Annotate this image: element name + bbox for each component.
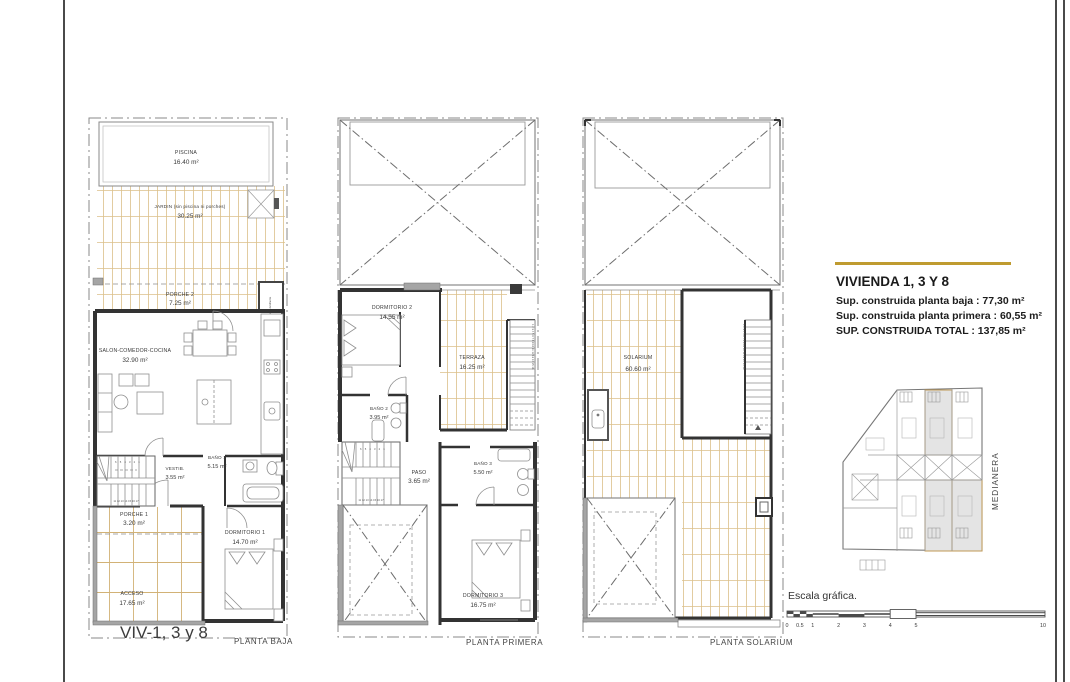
stairs: 6 5 4 3 2 1 11 12 13 14 15 16 17 (97, 456, 155, 506)
room-area-porche2: 7.25 m² (169, 300, 191, 307)
vivienda-title: VIVIENDA 1, 3 Y 8 (836, 274, 949, 289)
scale-tick: 1 (811, 623, 814, 629)
room-label-dormitorio2: DORMITORIO 2 (372, 305, 412, 311)
caption-planta-primera: PLANTA PRIMERA (466, 638, 543, 647)
room-area-dormitorio3: 16.75 m² (470, 602, 495, 609)
planta-solarium-drawing: 1 2 3 4 5 6 7 8 9 10 11 12 13 14 15 16 S… (575, 112, 790, 652)
void-over-acceso (583, 498, 678, 622)
solarium-hatch-right (682, 438, 771, 618)
room-area-acceso: 17.65 m² (119, 600, 144, 607)
stair-numbers-bottom: 11 12 13 14 15 16 17 (113, 499, 139, 503)
scale-tick: 2 (837, 623, 840, 629)
stair-numbers-top: 6 5 4 3 2 1 (115, 460, 141, 464)
void-over-garden (340, 120, 535, 285)
room-label-dormitorio1: DORMITORIO 1 (225, 530, 265, 536)
room-area-bano3: 5.50 m² (474, 470, 493, 476)
room-area-jardin: 30.25 m² (177, 213, 202, 220)
sup-total: SUP. CONSTRUIDA TOTAL : 137,85 m² (836, 325, 1026, 337)
room-area-dormitorio1: 14.70 m² (232, 539, 257, 546)
room-label-porche2: PORCHE 2 (166, 292, 194, 298)
stairs-winder: 6 5 4 3 2 1 11 12 13 14 15 16 17 (342, 442, 400, 505)
room-label-solarium: SOLARIUM (624, 355, 653, 361)
bed-dormitorio1 (225, 539, 283, 621)
room-area-dormitorio2: 14.55 m² (379, 314, 404, 321)
scale-bar: 0 0.5 1 2 3 4 5 10 (783, 604, 1049, 634)
planta-baja-drawing: Armario Jardinería (85, 112, 295, 647)
stair-numbers-bottom: 11 12 13 14 15 16 17 (358, 498, 384, 502)
room-area-piscina: 16.40 m² (173, 159, 198, 166)
scale-ticks: 0 0.5 1 2 3 4 5 10 (786, 623, 1047, 629)
room-label-jardin: JARDIN (sin piscina ni porches) (154, 204, 225, 209)
stair-numbers-top: 6 5 4 3 2 1 (360, 447, 386, 451)
room-area-vestib: 3.55 m² (166, 475, 185, 481)
room-area-salon: 32.90 m² (122, 357, 147, 364)
room-label-acceso: ACCESO (120, 591, 143, 597)
viv-label: VIV-1, 3 y 8 (120, 623, 208, 643)
medianera-label: MEDIANERA (991, 452, 1000, 510)
dining-table (184, 321, 236, 356)
room-label-terraza: TERRAZA (459, 355, 485, 361)
caption-planta-solarium: PLANTA SOLARIUM (710, 638, 793, 647)
bathroom1-fixtures (243, 460, 283, 502)
scale-tick: 10 (1040, 623, 1046, 629)
stairs-straight: 1 2 3 4 5 6 7 8 9 10 11 12 13 14 15 16 (510, 320, 535, 430)
room-area-bano1: 5.15 m² (208, 464, 227, 470)
sup-planta-baja: Sup. construida planta baja : 77,30 m² (836, 295, 1024, 307)
stairs-straight: 1 2 3 4 5 6 7 8 9 10 11 12 13 14 15 16 (742, 320, 771, 434)
room-label-paso: PASO (412, 470, 427, 476)
drawing-sheet: Armario Jardinería (0, 0, 1070, 682)
armario-jardineria: Armario Jardinería (259, 282, 283, 319)
sofa (98, 374, 163, 432)
escala-label: Escala gráfica. (788, 590, 857, 602)
room-label-piscina: PISCINA (175, 150, 197, 156)
tv-unit (197, 380, 231, 424)
bed-dormitorio2 (342, 315, 400, 377)
accent-rule (835, 262, 1011, 265)
sheet-border-right-outer (1063, 0, 1065, 682)
scale-tick: 3 (863, 623, 866, 629)
scale-tick: 5 (915, 623, 918, 629)
room-label-vestib: VESTIB. (165, 466, 184, 471)
room-area-porche1: 3.20 m² (123, 520, 145, 527)
acceso-hatch (97, 507, 203, 622)
planta-primera-drawing: 1 2 3 4 5 6 7 8 9 10 11 12 13 14 15 16 6… (330, 112, 545, 652)
scale-tick: 0.5 (796, 623, 804, 629)
scale-tick: 4 (889, 623, 892, 629)
sheet-border-right-inner (1055, 0, 1057, 682)
void-over-acceso (338, 505, 428, 625)
void-over-garden (585, 120, 780, 285)
room-label-porche1: PORCHE 1 (120, 512, 148, 518)
room-area-solarium: 60.60 m² (625, 366, 650, 373)
stair-numbers-side: 1 2 3 4 5 6 7 8 9 10 11 12 13 14 15 16 (531, 324, 535, 370)
site-key-plan: MEDIANERA (838, 378, 1013, 578)
room-area-bano2: 3.95 m² (370, 415, 389, 421)
kitchen-counter (261, 314, 283, 454)
sheet-border-left (63, 0, 65, 682)
room-label-salon: SALON-COMEDOR-COCINA (99, 348, 172, 354)
stair-numbers-side: 1 2 3 4 5 6 7 8 9 10 11 12 13 14 15 16 (742, 324, 746, 370)
room-area-paso: 3.65 m² (408, 478, 430, 485)
room-label-bano2: BAÑO 2 (370, 405, 388, 411)
porche2-wall-left (93, 278, 103, 285)
solarium-sink (588, 390, 608, 440)
sup-planta-primera: Sup. construida planta primera : 60,55 m… (836, 310, 1042, 322)
room-label-bano3: BAÑO 3 (474, 460, 492, 466)
scale-tick: 0 (786, 623, 789, 629)
room-label-dormitorio3: DORMITORIO 3 (463, 593, 503, 599)
room-area-terraza: 16.25 m² (459, 364, 484, 371)
chimney-box (756, 498, 772, 516)
jardin-feature-box (248, 190, 279, 218)
room-label-bano1: BAÑO 1 (208, 454, 226, 460)
caption-planta-baja: PLANTA BAJA (234, 637, 293, 646)
